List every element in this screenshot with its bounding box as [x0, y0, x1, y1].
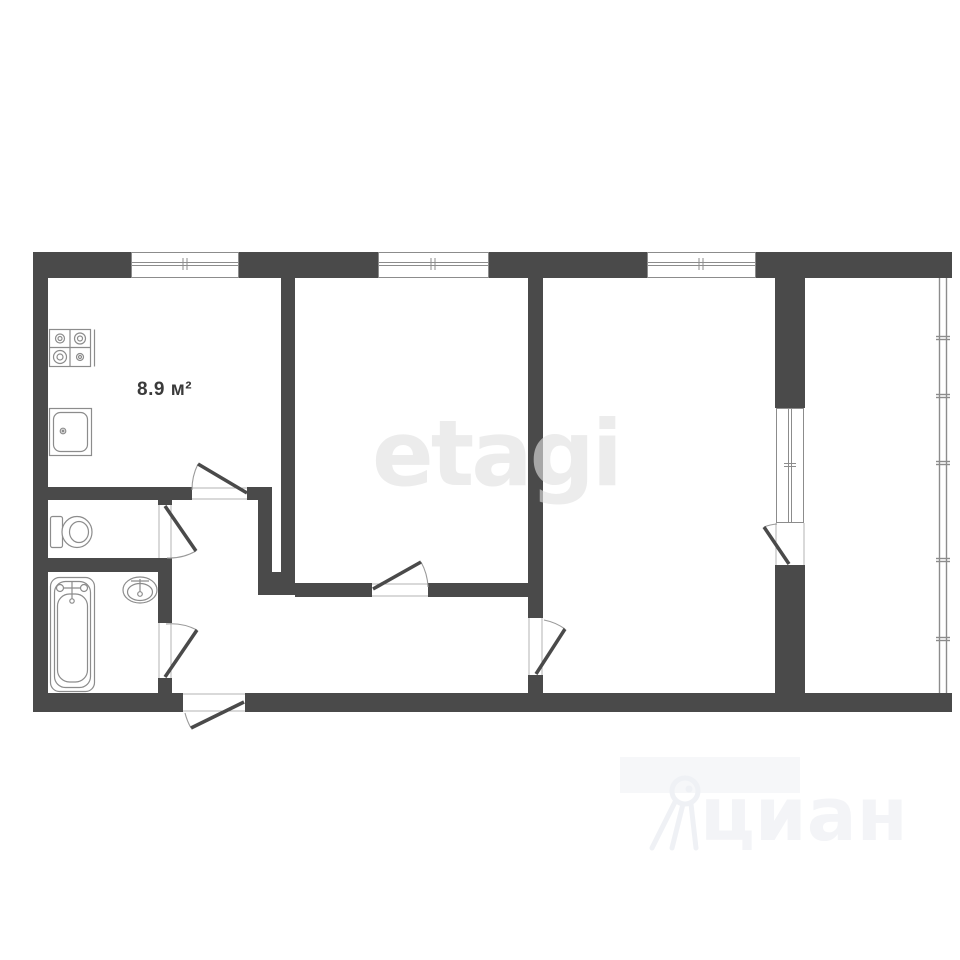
kitchen-sink-icon [50, 409, 92, 456]
toilet-icon [51, 517, 93, 548]
kitchen-door-arc [192, 464, 198, 490]
wall-room1-bottom-b [428, 583, 528, 597]
wall-left [33, 252, 48, 712]
floorplan-image: 8.9 м² etagi циан [0, 0, 960, 960]
wall-living-door-stub [528, 675, 543, 693]
wall-balcony-top [775, 278, 805, 408]
wc-door-leaf [165, 506, 196, 551]
kitchen-door-leaf [198, 464, 247, 493]
wall-wc-right-stub [158, 487, 172, 505]
wall-shaft-left [258, 500, 272, 583]
wall-top-d [756, 252, 952, 278]
watermark-etagi: etagi [372, 405, 620, 505]
wall-shaft-bottom [258, 572, 295, 595]
stove-icon [50, 330, 95, 367]
balcony-window [777, 409, 804, 523]
room1-door-arc [421, 562, 428, 587]
living-door-arc [544, 620, 565, 629]
balcony-wall-ticks [936, 337, 950, 641]
wall-kitchen-door-jamb [247, 487, 272, 500]
wall-bath-right-stub [158, 678, 172, 693]
balcony-thin-wall [936, 278, 950, 693]
entrance-door-leaf [191, 702, 244, 728]
entrance-door-arc [185, 713, 191, 728]
cian-bird-icon [628, 762, 708, 862]
balcony-door-arc [764, 524, 777, 527]
wall-top-c [489, 252, 647, 278]
bathroom-sink-icon [123, 577, 157, 603]
wall-bottom-b [245, 693, 952, 712]
kitchen-area-label: 8.9 м² [137, 379, 192, 401]
entrance-door-opening [183, 694, 245, 711]
door-openings [159, 488, 804, 711]
wall-balcony-bottom [775, 565, 805, 693]
bath-door-leaf [165, 630, 197, 677]
wall-bath-right [158, 572, 172, 623]
balcony-door-opening [776, 523, 804, 565]
living-door-leaf [536, 629, 565, 674]
wall-room1-bottom-a [295, 583, 372, 597]
watermark-cian: циан [700, 778, 908, 852]
room1-door-leaf [373, 562, 421, 589]
wall-kitchen-room-divider [281, 278, 295, 595]
bathtub-icon [51, 578, 95, 692]
wall-top-b [239, 252, 378, 278]
wall-wc-bath-divider [48, 558, 172, 572]
wall-bottom-a [33, 693, 183, 712]
